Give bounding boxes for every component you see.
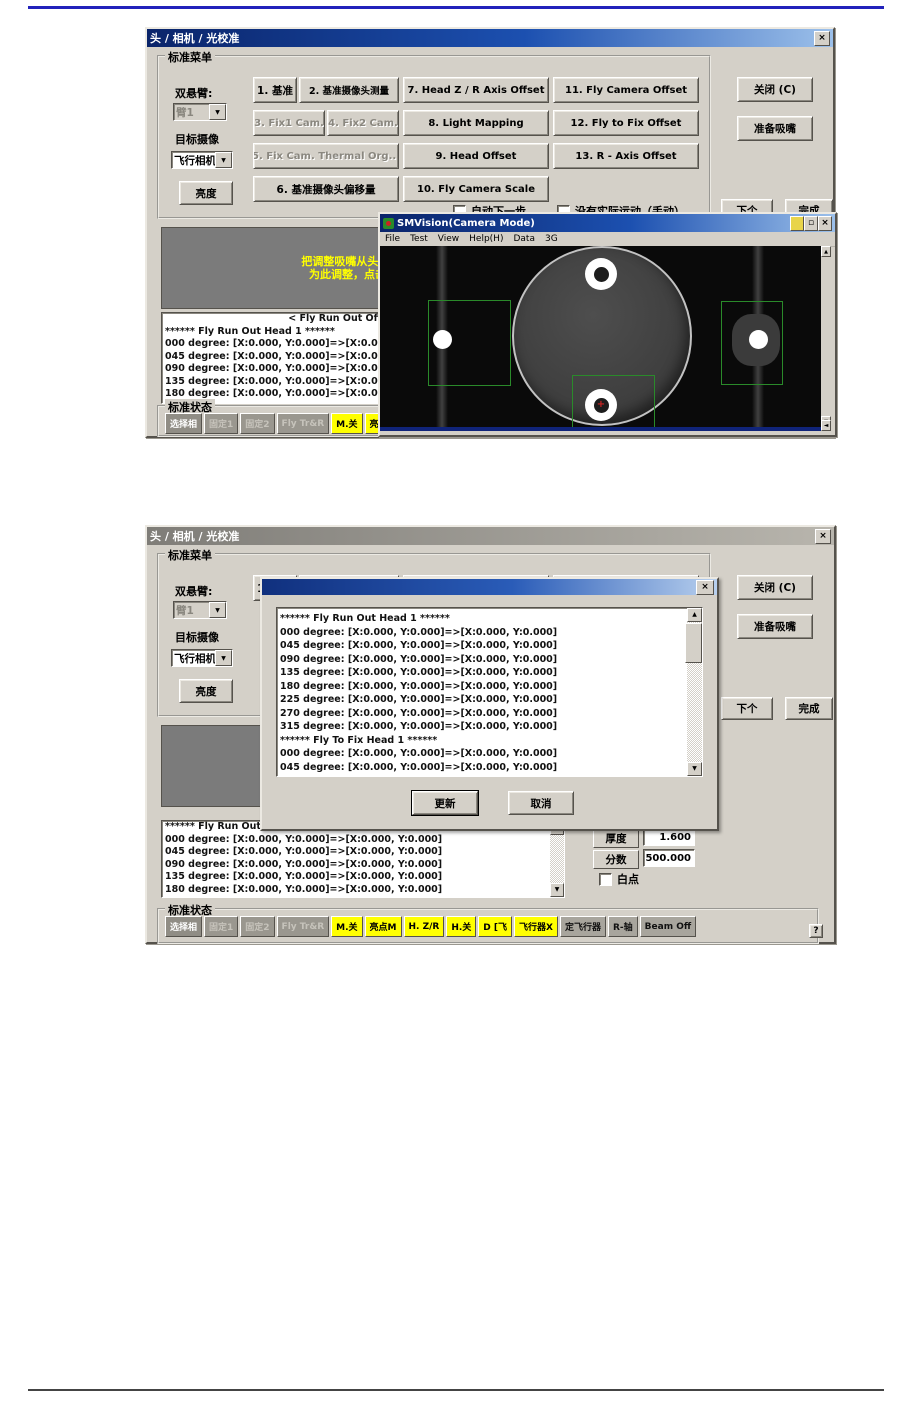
arm-combo-1[interactable]: 臂1 ▼ [173,103,227,121]
step8-button-1[interactable]: 8. Light Mapping [403,110,549,136]
roi-rect-bottom [572,375,655,427]
close-c-button-2[interactable]: 关闭 (C) [737,575,813,600]
white-dot-checkbox[interactable]: 白点 [599,871,639,887]
list-line: 225 degree: [X:0.000, Y:0.000]=>[X:0.000… [277,693,702,707]
status-button[interactable]: M.关 [331,413,362,434]
arm-label-2: 双悬臂: [175,583,212,599]
status-button[interactable]: 飞行器X [514,916,558,937]
menu-item[interactable]: Data [508,234,540,244]
status-button[interactable]: Fly Tr&R [277,916,330,937]
step13-button-1[interactable]: 13. R - Axis Offset [553,143,699,169]
fiducial-ring-top [585,258,617,290]
list-line: 090 degree: [X:0.000, Y:0.000]=>[X:0.000… [277,653,702,667]
smvision-window: SMVision(Camera Mode) ▫ × FileTestViewHe… [378,212,837,437]
camera-bottom-bar [380,427,821,431]
checkbox-icon[interactable] [599,873,612,886]
list-line: 270 degree: [X:0.000, Y:0.000]=>[X:0.000… [277,707,702,721]
menu-item[interactable]: 3G [540,234,563,244]
step4-button-1[interactable]: 4. Fix2 Cam. [327,110,399,136]
list-line: 045 degree: [X:0.000, Y:0.000]=>[X:0.000… [162,846,564,859]
next-button-2[interactable]: 下个 [721,697,773,720]
scroll-left-icon[interactable]: ◄ [821,420,831,431]
dialog2-title: 头 / 相机 / 光校准 [150,528,815,544]
menu-item[interactable]: Help(H) [464,234,508,244]
smvision-menubar: FileTestViewHelp(H)Data3G [380,232,835,247]
top-rule [28,6,884,9]
close-icon[interactable]: × [818,216,832,231]
prepare-nozzle-button-2[interactable]: 准备吸嘴 [737,614,813,639]
help-button[interactable]: ? [809,924,823,938]
update-button[interactable]: 更新 [412,791,478,815]
chevron-down-icon[interactable]: ▼ [215,650,232,666]
status-button[interactable]: Beam Off [640,916,697,937]
arm-combo-2[interactable]: 臂1 ▼ [173,601,227,619]
menu-item[interactable]: View [433,234,464,244]
camera-vertical-scrollbar[interactable]: ▲ ▼ [821,246,831,427]
status-button[interactable]: Fly Tr&R [277,413,330,434]
offset-data-popup: × ****** Fly Run Out Head 1 ******000 de… [260,577,719,831]
roi-rect-right [721,301,783,385]
calibration-dialog-2: 头 / 相机 / 光校准 × 标准菜单 双悬臂: 臂1 ▼ 目标摄像 飞行相机1… [145,525,836,944]
list-line: 045 degree: [X:0.000, Y:0.000]=>[X:0.000… [277,639,702,653]
target-camera-combo-2[interactable]: 飞行相机1 ▼ [171,649,233,667]
menu-group-title-2: 标准菜单 [165,547,215,563]
step6-button-1[interactable]: 6. 基准摄像头偏移量 [253,176,399,202]
offset-data-list-2[interactable]: ****** Fly Run Out Head 1 ******000 degr… [161,820,565,898]
status-button[interactable]: M.关 [331,916,362,937]
dialog1-close-icon[interactable]: × [814,31,830,46]
smvision-title: SMVision(Camera Mode) [397,218,790,229]
score-value[interactable]: 500.000 [643,849,695,867]
list-line: 000 degree: [X:0.000, Y:0.000]=>[X:0.000… [162,834,564,847]
scroll-thumb[interactable] [685,623,702,663]
target-camera-combo-1[interactable]: 飞行相机1 ▼ [171,151,233,169]
close-c-button-1[interactable]: 关闭 (C) [737,77,813,102]
popup-data-list[interactable]: ****** Fly Run Out Head 1 ******000 degr… [276,607,703,777]
dialog2-titlebar[interactable]: 头 / 相机 / 光校准 × [147,527,834,545]
popup-close-icon[interactable]: × [696,580,714,595]
status-button[interactable]: 固定1 [204,413,238,434]
list-line: 135 degree: [X:0.000, Y:0.000]=>[X:0.000… [162,871,564,884]
finish-button-2[interactable]: 完成 [785,697,833,720]
step5-button-1[interactable]: 5. Fix Cam. Thermal Org... [253,143,399,169]
step1-button-1[interactable]: 1. 基准 [253,77,297,103]
step9-button-1[interactable]: 9. Head Offset [403,143,549,169]
status-button[interactable]: 定飞行器 [560,916,606,937]
list-line: ****** Fly Run Out Head 1 ****** [277,612,702,626]
list-line: 135 degree: [X:0.000, Y:0.000]=>[X:0.000… [277,666,702,680]
scroll-down-icon[interactable]: ▼ [687,762,702,776]
status-button[interactable]: 固定2 [240,413,274,434]
bottom-rule [28,1389,884,1391]
thickness-label: 厚度 [593,829,639,848]
chevron-down-icon[interactable]: ▼ [215,152,232,168]
dialog1-titlebar[interactable]: 头 / 相机 / 光校准 × [147,29,833,47]
status-button[interactable]: 选择相 [165,916,202,937]
smvision-app-icon [383,218,394,229]
popup-titlebar[interactable]: × [262,579,717,595]
dialog1-title: 头 / 相机 / 光校准 [150,30,814,46]
dialog2-close-icon[interactable]: × [815,529,831,544]
status-button-row-2: 选择相 固定1 固定2 Fly Tr&R M.关 亮点M H. Z/R H.关 … [165,916,696,937]
minimize-icon[interactable] [790,216,804,231]
list-line: 180 degree: [X:0.000, Y:0.000]=>[X:0.000… [162,884,564,897]
menu-item[interactable]: Test [405,234,433,244]
chevron-down-icon[interactable]: ▼ [209,602,226,618]
step10-button-1[interactable]: 10. Fly Camera Scale [403,176,549,202]
brightness-button-2[interactable]: 亮度 [179,679,233,703]
scroll-up-icon[interactable]: ▲ [687,608,702,622]
camera-view: + [380,246,821,427]
step3-button-1[interactable]: 3. Fix1 Cam. [253,110,325,136]
cancel-button[interactable]: 取消 [508,791,574,815]
list-line: 000 degree: [X:0.000, Y:0.000]=>[X:0.000… [277,747,702,761]
list-line: 045 degree: [X:0.000, Y:0.000]=>[X:0.000… [277,761,702,775]
target-camera-label-1: 目标摄像 [175,131,219,147]
scroll-down-icon[interactable]: ▼ [550,883,564,897]
list-line: 315 degree: [X:0.000, Y:0.000]=>[X:0.000… [277,720,702,734]
list-line: 000 degree: [X:0.000, Y:0.000]=>[X:0.000… [277,626,702,640]
brightness-button-1[interactable]: 亮度 [179,181,233,205]
menu-group-title-1: 标准菜单 [165,49,215,65]
step2-button-1[interactable]: 2. 基准摄像头测量 [299,77,399,103]
scroll-up-icon[interactable]: ▲ [821,246,831,257]
list-line: 180 degree: [X:0.000, Y:0.000]=>[X:0.000… [277,680,702,694]
prepare-nozzle-button-1[interactable]: 准备吸嘴 [737,116,813,141]
popup-scrollbar[interactable]: ▲ ▼ [687,608,702,776]
status-button[interactable]: 亮点M [365,916,402,937]
list2-scrollbar[interactable]: ▲ ▼ [550,821,564,897]
status-button[interactable]: D [飞 [478,916,512,937]
chevron-down-icon[interactable]: ▼ [209,104,226,120]
instruction-text: 把调整吸嘴从头1 为此调整，点击 [301,255,386,281]
list-line: 090 degree: [X:0.000, Y:0.000]=>[X:0.000… [162,859,564,872]
status-button[interactable]: 选择相 [165,413,202,434]
arm-label-1: 双悬臂: [175,85,212,101]
score-label: 分数 [593,850,639,869]
step12-button-1[interactable]: 12. Fly to Fix Offset [553,110,699,136]
smvision-titlebar[interactable]: SMVision(Camera Mode) ▫ × [380,214,835,232]
list-line: ****** Fly To Fix Head 1 ****** [277,734,702,748]
roi-rect-left [428,300,511,386]
maximize-icon[interactable]: ▫ [804,216,818,231]
status-button[interactable]: R-轴 [608,916,638,937]
status-button[interactable]: H.关 [446,916,476,937]
menu-item[interactable]: File [380,234,405,244]
document-page: 头 / 相机 / 光校准 × 标准菜单 双悬臂: 臂1 ▼ 目标摄像 飞行相机1… [0,0,913,1402]
status-button[interactable]: H. Z/R [404,916,445,937]
status-button[interactable]: 固定2 [240,916,274,937]
step11-button-1[interactable]: 11. Fly Camera Offset [553,77,699,103]
status-button[interactable]: 固定1 [204,916,238,937]
target-camera-label-2: 目标摄像 [175,629,219,645]
step7-button-1[interactable]: 7. Head Z / R Axis Offset [403,77,549,103]
